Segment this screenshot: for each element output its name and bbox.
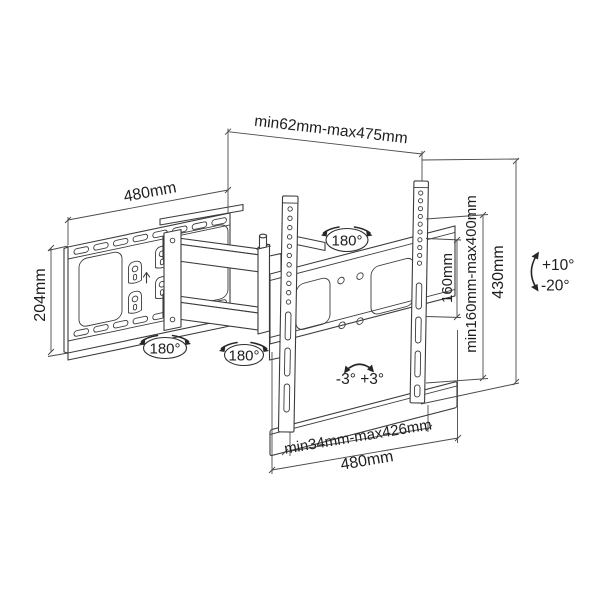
label-wall-plate-height: 204mm [32,268,49,321]
arm-link-bar [297,237,326,251]
tv-rail-left [278,196,298,432]
label-tilt-down: -20° [541,278,570,295]
label-level-range: -3° +3° [336,371,384,388]
wall-plate-left-flange [64,247,68,353]
label-hole-range-vertical: min160mm-max400mm [463,195,480,353]
tv-rail-right [410,181,428,403]
tv-mount-diagram: min62mm-max475mm 480mm 204mm 180° 180° 1… [0,0,600,600]
pivot-bolt-icon [259,234,266,248]
label-swivel-tv: 180° [331,233,362,250]
label-swivel-wall: 180° [149,341,180,358]
label-tilt-up: +10° [542,257,575,274]
label-wall-plate-width: 480mm [122,179,178,206]
tilt-arrow-icon [531,252,539,292]
wall-arm-bracket [164,230,181,331]
label-swivel-arm: 180° [228,348,259,365]
arm-elbow-post [257,234,272,334]
label-vesa-vertical: 160mm [439,253,456,303]
label-bracket-width: 480mm [339,448,394,474]
label-bracket-height: 430mm [490,245,507,298]
label-extension-range: min62mm-max475mm [253,113,408,148]
